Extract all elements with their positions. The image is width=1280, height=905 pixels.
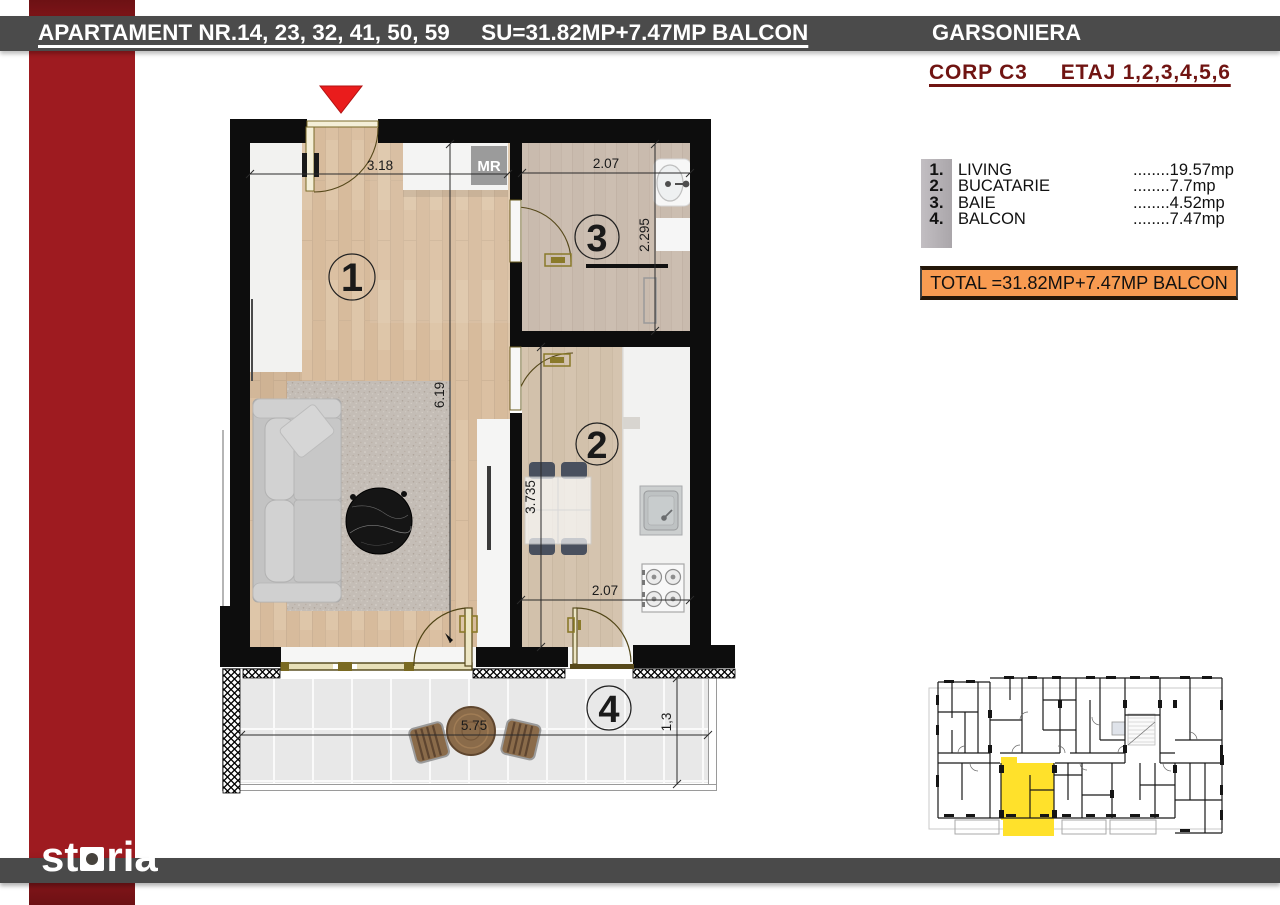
svg-text:2.07: 2.07 bbox=[593, 156, 619, 171]
svg-text:3: 3 bbox=[586, 218, 607, 260]
svg-text:2.295: 2.295 bbox=[637, 218, 652, 252]
svg-text:3.18: 3.18 bbox=[367, 158, 393, 173]
svg-text:MR: MR bbox=[477, 158, 500, 175]
svg-text:1,3: 1,3 bbox=[659, 713, 674, 732]
svg-text:2: 2 bbox=[586, 425, 607, 467]
svg-text:5.75: 5.75 bbox=[461, 718, 487, 733]
svg-text:3.735: 3.735 bbox=[523, 480, 538, 514]
svg-text:1: 1 bbox=[341, 256, 363, 300]
svg-text:6.19: 6.19 bbox=[432, 382, 447, 408]
svg-text:2.07: 2.07 bbox=[592, 583, 618, 598]
svg-text:4: 4 bbox=[598, 689, 619, 731]
